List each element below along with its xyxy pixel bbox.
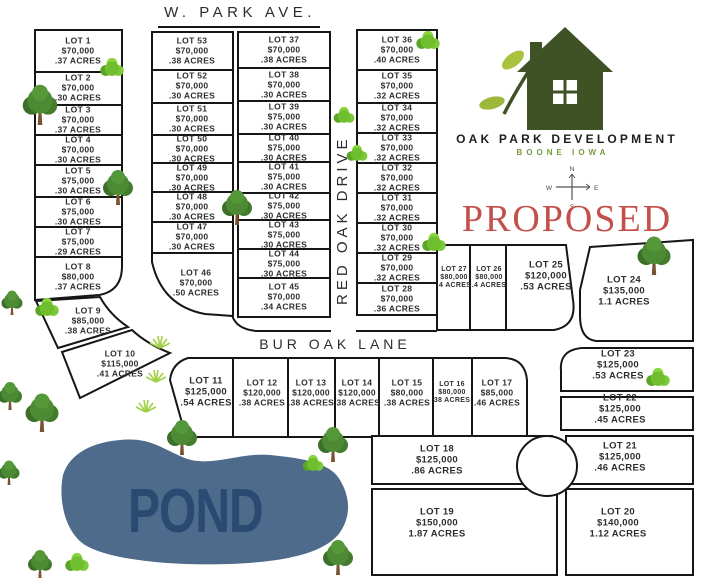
lot-6-shape (35, 197, 122, 227)
brand-name: OAK PARK DEVELOPMENT (456, 132, 678, 146)
lots-column-4 (357, 30, 437, 315)
lots-column-2 (152, 32, 233, 316)
lot-14-shape (335, 358, 379, 437)
lot-44-shape (238, 249, 330, 278)
lot-26-shape (470, 245, 506, 330)
logo-leaf-lower (478, 94, 506, 112)
lot-53-shape (152, 32, 233, 70)
compass-w: W (546, 185, 553, 192)
logo: OAK PARK DEVELOPMENT BOONE IOWA (456, 27, 678, 157)
lot-52-shape (152, 70, 233, 103)
lot-43-shape (238, 220, 330, 249)
compass-n: N (570, 166, 575, 173)
compass-cross (556, 174, 590, 200)
lots-bottom-row (170, 358, 527, 437)
lot-7-shape (35, 227, 122, 257)
lot-19-shape (372, 489, 557, 575)
lot-38-shape (238, 68, 330, 101)
lot-49-shape (152, 163, 233, 192)
cul-de-sac (517, 436, 577, 496)
lot-50-shape (152, 135, 233, 163)
lot-34-shape (357, 103, 437, 133)
lot-15-shape (379, 358, 433, 437)
lot-29-shape (357, 253, 437, 283)
lot-20-shape (566, 489, 693, 575)
w-park-ave-label: W. PARK AVE. (164, 4, 316, 21)
bur-oak-lane-label: BUR OAK LANE (259, 336, 410, 352)
lots-column-3 (238, 32, 330, 317)
lot-41-shape (238, 162, 330, 193)
lot-32-shape (357, 163, 437, 193)
lot-37-shape (238, 32, 330, 68)
lot-51-shape (152, 103, 233, 135)
lot-25-shape (506, 245, 574, 330)
lot-24-shape (580, 240, 693, 341)
lot-35-shape (357, 70, 437, 103)
lot-47-shape (152, 222, 233, 253)
lot-39-shape (238, 101, 330, 134)
plat-svg: POND (0, 0, 701, 588)
lot-40-shape (238, 134, 330, 162)
lot-45-shape (238, 278, 330, 317)
red-oak-drive-label: RED OAK DRIVE (334, 135, 351, 305)
proposed-label: PROPOSED (462, 198, 672, 240)
lot-31-shape (357, 193, 437, 223)
lot-48-shape (152, 192, 233, 222)
lot-16-shape (433, 358, 472, 437)
lot-33-shape (357, 133, 437, 163)
lot-28-shape (357, 283, 437, 315)
lot-27-shape (437, 245, 470, 330)
lot-13-shape (288, 358, 335, 437)
lot-12-shape (233, 358, 288, 437)
pond-label: POND (128, 476, 263, 545)
brand-location: BOONE IOWA (517, 148, 610, 157)
lot-21-shape (566, 436, 693, 484)
plat-map: POND (0, 0, 701, 588)
compass-e: E (594, 185, 599, 192)
lot-17-shape (472, 358, 527, 437)
lot-46-shape (152, 253, 233, 316)
lot-23-shape (561, 348, 693, 391)
lot-22-shape (561, 397, 693, 430)
lots-column-1 (35, 30, 170, 398)
lot-8-shape (35, 257, 122, 300)
pond: POND (61, 439, 348, 564)
lot-4-shape (35, 135, 122, 165)
